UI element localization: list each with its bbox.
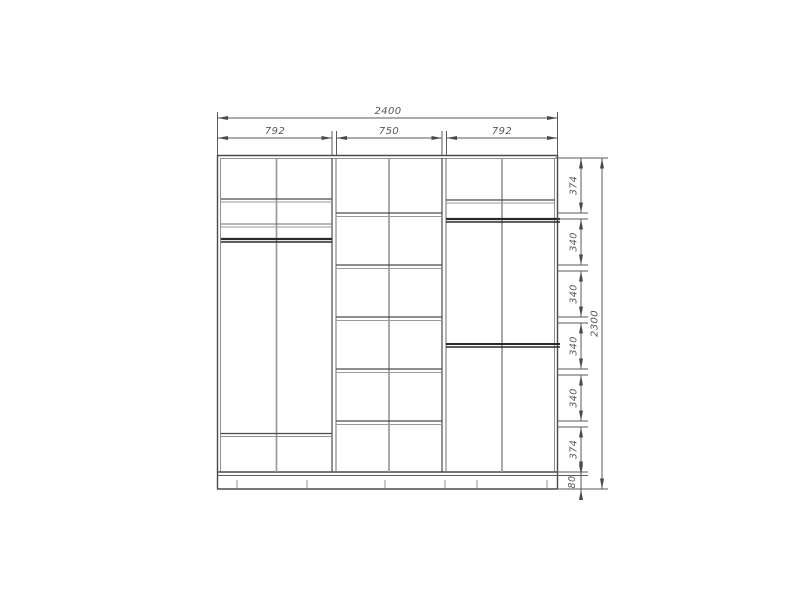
dim-plinth-height: 80: [567, 476, 578, 489]
dim-row-3: 340: [569, 284, 580, 303]
height-dimension-labels: 374 340 340 340 340 374 80 2300: [567, 176, 601, 489]
dim-section-right-width: 792: [492, 126, 512, 137]
dim-section-left-width: 792: [265, 126, 285, 137]
drawing-canvas: 2400 792 750 792 374 340: [0, 0, 800, 600]
dim-row-1: 374: [569, 176, 580, 195]
dim-row-2: 340: [569, 232, 580, 251]
plinth-feet-ticks: [237, 480, 547, 488]
width-dimension-labels: 2400 792 750 792: [265, 106, 512, 137]
dim-section-middle-width: 750: [379, 126, 399, 137]
cabinet-outline: [217, 155, 558, 489]
dim-row-6: 374: [569, 440, 580, 459]
wardrobe-technical-drawing: 2400 792 750 792 374 340: [0, 0, 800, 600]
dim-total-height: 2300: [590, 310, 601, 337]
dim-row-4: 340: [569, 336, 580, 355]
right-section-shelves: [446, 200, 560, 347]
dim-row-5: 340: [569, 388, 580, 407]
dim-total-width: 2400: [374, 106, 401, 117]
